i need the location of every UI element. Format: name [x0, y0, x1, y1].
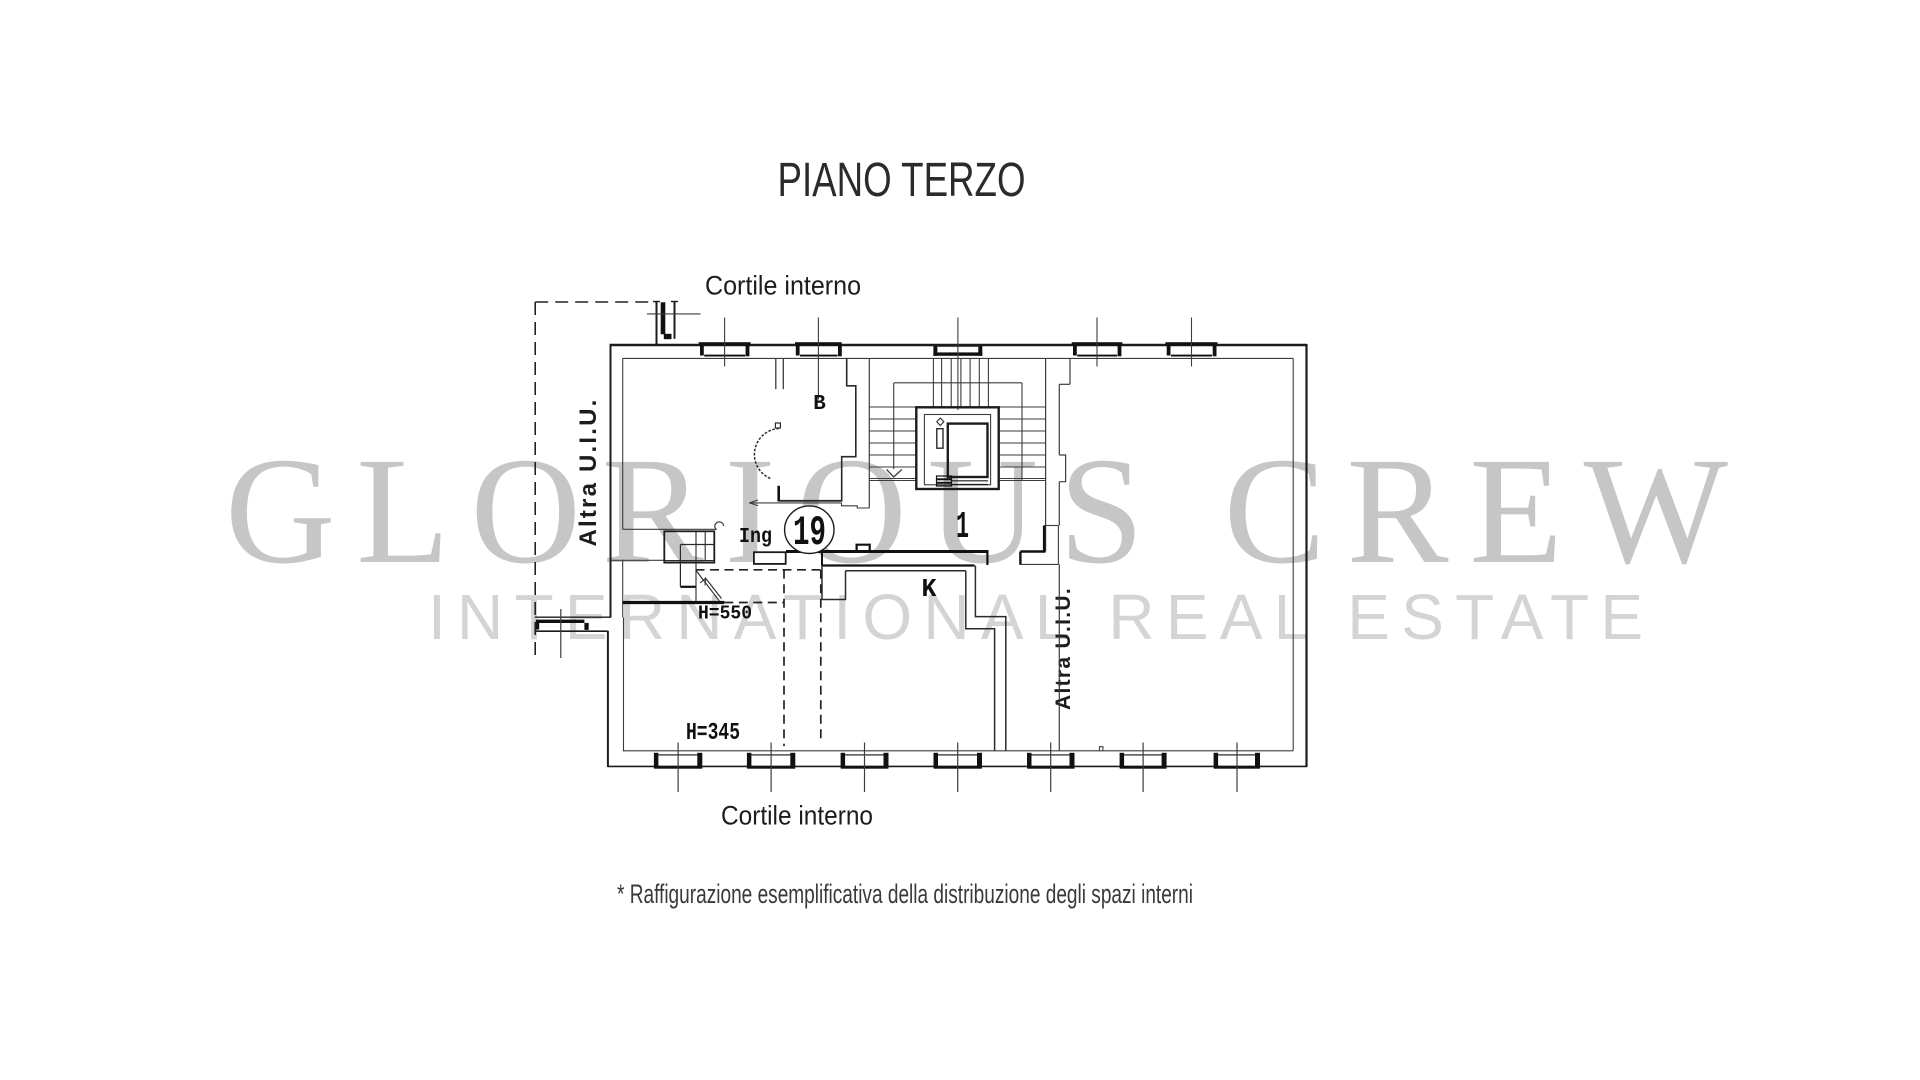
svg-text:1: 1: [956, 506, 969, 549]
svg-text:H=345: H=345: [686, 720, 740, 747]
svg-text:GLORIOUS CREW: GLORIOUS CREW: [225, 427, 1729, 596]
svg-text:* Raffigurazione esemplificati: * Raffigurazione esemplificativa della d…: [617, 879, 1193, 909]
svg-text:Altra U.I.U.: Altra U.I.U.: [1052, 587, 1075, 710]
svg-text:Cortile interno: Cortile interno: [705, 271, 861, 301]
svg-text:Ing: Ing: [739, 526, 772, 549]
svg-text:K: K: [922, 574, 937, 604]
svg-text:Cortile interno: Cortile interno: [721, 801, 873, 831]
svg-text:Altra U.I.U.: Altra U.I.U.: [575, 397, 602, 546]
svg-text:B: B: [813, 393, 826, 416]
svg-text:19: 19: [793, 509, 826, 557]
svg-text:PIANO TERZO: PIANO TERZO: [778, 153, 1026, 207]
svg-text:H=550: H=550: [698, 603, 752, 625]
